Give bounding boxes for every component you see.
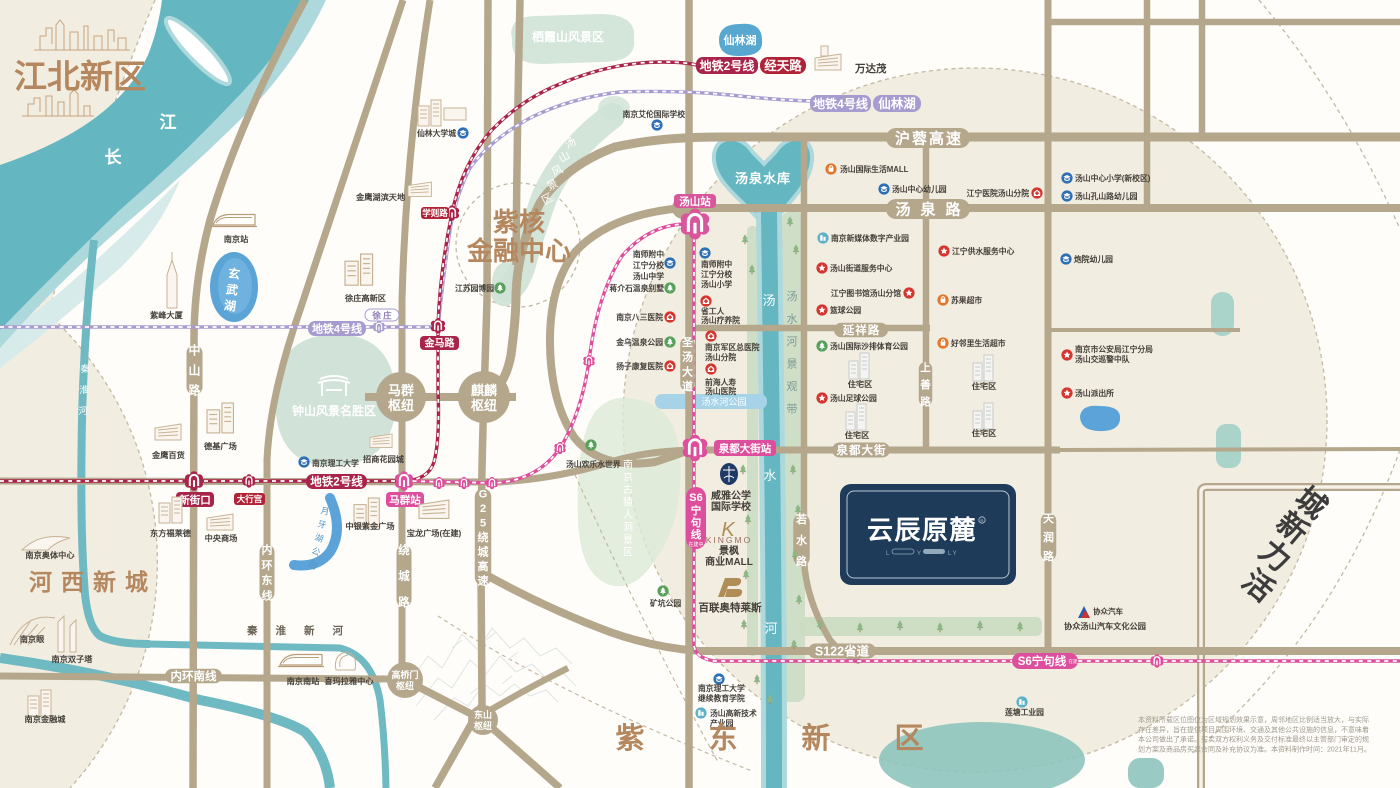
svg-text:马群: 马群 — [388, 383, 414, 398]
svg-text:篮球公园: 篮球公园 — [829, 305, 861, 315]
svg-text:绕: 绕 — [478, 530, 489, 544]
svg-text:城: 城 — [478, 544, 489, 558]
svg-text:句: 句 — [691, 516, 702, 529]
svg-text:招商花园城: 招商花园城 — [363, 454, 405, 464]
svg-text:泉都大街: 泉都大街 — [836, 443, 887, 457]
svg-text:金融中心: 金融中心 — [466, 236, 571, 266]
svg-text:协众汽车: 协众汽车 — [1093, 606, 1123, 616]
svg-text:汤: 汤 — [682, 350, 693, 364]
svg-text:马群站: 马群站 — [389, 493, 421, 506]
svg-text:苏果超市: 苏果超市 — [951, 295, 982, 305]
svg-text:路: 路 — [1043, 549, 1055, 563]
svg-text:城: 城 — [398, 569, 410, 583]
svg-text:南京理工大学: 南京理工大学 — [698, 683, 745, 693]
svg-text:汤山孔山路幼儿园: 汤山孔山路幼儿园 — [1075, 191, 1138, 201]
svg-text:高桥门: 高桥门 — [391, 669, 418, 680]
svg-text:炮院幼儿园: 炮院幼儿园 — [1073, 254, 1113, 264]
svg-text:河: 河 — [78, 405, 89, 418]
svg-text:前海人寿: 前海人寿 — [705, 377, 736, 387]
svg-text:汤山站: 汤山站 — [679, 195, 711, 208]
svg-text:2: 2 — [480, 503, 486, 515]
svg-text:绕: 绕 — [398, 543, 410, 557]
svg-text:汤水河公园: 汤水河公园 — [701, 396, 746, 407]
svg-text:蒋介石温泉别墅: 蒋介石温泉别墅 — [609, 283, 664, 293]
svg-text:东方福莱德: 东方福莱德 — [150, 528, 192, 538]
svg-text:江宁分校: 江宁分校 — [701, 269, 732, 279]
svg-text:地铁2号线: 地铁2号线 — [310, 475, 363, 489]
svg-text:徐庄高新区: 徐庄高新区 — [344, 293, 386, 303]
svg-text:矿坑公园: 矿坑公园 — [650, 598, 681, 608]
svg-text:江宁供水服务中心: 江宁供水服务中心 — [952, 246, 1015, 256]
svg-text:中银紫金广场: 中银紫金广场 — [345, 521, 394, 531]
svg-text:国际学校: 国际学校 — [711, 500, 752, 513]
svg-text:泉都大街站: 泉都大街站 — [718, 442, 772, 455]
svg-text:上: 上 — [920, 361, 931, 374]
svg-text:宁: 宁 — [691, 504, 702, 517]
svg-text:在建中: 在建中 — [688, 541, 703, 548]
svg-text:环: 环 — [262, 559, 273, 572]
svg-text:南京市公安局江宁分局: 南京市公安局江宁分局 — [1075, 344, 1153, 354]
svg-text:地铁4号线: 地铁4号线 — [312, 321, 362, 335]
svg-text:山: 山 — [188, 362, 200, 377]
svg-text:区: 区 — [623, 547, 633, 559]
svg-text:圣: 圣 — [681, 336, 694, 349]
svg-text:内环南线: 内环南线 — [171, 669, 217, 683]
svg-text:汤山国际生活MALL: 汤山国际生活MALL — [840, 164, 909, 174]
svg-text:江宁医院汤山分院: 江宁医院汤山分院 — [967, 188, 1030, 198]
svg-text:汤山中学: 汤山中学 — [633, 271, 664, 281]
svg-text:路: 路 — [920, 395, 931, 408]
svg-text:Y: Y — [917, 551, 921, 557]
svg-text:5: 5 — [480, 517, 486, 529]
svg-text:仙林湖: 仙林湖 — [724, 33, 757, 47]
svg-text:汤山分院: 汤山分院 — [705, 352, 736, 362]
svg-text:住宅区: 住宅区 — [972, 381, 997, 391]
svg-text:南京金融城: 南京金融城 — [25, 714, 67, 724]
svg-text:观: 观 — [787, 380, 798, 393]
svg-text:汤山欢乐水世界: 汤山欢乐水世界 — [566, 459, 621, 469]
svg-text:南京理工大学: 南京理工大学 — [312, 458, 359, 468]
svg-text:万达茂: 万达茂 — [854, 62, 887, 75]
svg-text:L Y: L Y — [948, 551, 957, 557]
svg-text:金乌温泉公园: 金乌温泉公园 — [615, 337, 663, 347]
svg-text:线: 线 — [691, 528, 702, 541]
svg-text:带: 带 — [787, 403, 798, 416]
svg-text:住宅区: 住宅区 — [845, 430, 870, 440]
svg-text:秦: 秦 — [80, 363, 91, 376]
svg-text:汤山交巡警中队: 汤山交巡警中队 — [1075, 354, 1130, 364]
svg-text:汤山中心小学(新校区): 汤山中心小学(新校区) — [1075, 173, 1151, 183]
svg-text:江宁分校: 江宁分校 — [633, 260, 664, 270]
svg-text:地铁4号线: 地铁4号线 — [813, 96, 868, 111]
svg-text:武: 武 — [225, 281, 239, 298]
svg-text:S6宁句线: S6宁句线 — [1018, 654, 1067, 668]
svg-text:新街口: 新街口 — [179, 493, 211, 506]
svg-text:汤山足球公园: 汤山足球公园 — [830, 393, 877, 403]
svg-text:枢纽: 枢纽 — [474, 720, 492, 731]
svg-text:住宅区: 住宅区 — [972, 428, 997, 438]
svg-text:玄: 玄 — [227, 265, 241, 282]
svg-text:德基广场: 德基广场 — [203, 441, 237, 451]
svg-text:扬子康复医院: 扬子康复医院 — [616, 361, 663, 371]
svg-text:继续教育学院: 继续教育学院 — [698, 693, 745, 703]
svg-text:新: 新 — [801, 722, 830, 755]
svg-text:线: 线 — [262, 588, 273, 602]
svg-text:东: 东 — [262, 573, 273, 587]
svg-text:善: 善 — [920, 378, 931, 391]
svg-text:秦淮新河: 秦淮新河 — [246, 624, 361, 637]
svg-text:大: 大 — [682, 364, 693, 378]
svg-text:淮: 淮 — [79, 385, 90, 397]
svg-text:中央商场: 中央商场 — [205, 533, 238, 543]
svg-text:河: 河 — [787, 335, 798, 348]
svg-text:S6: S6 — [689, 492, 702, 504]
svg-text:存在差异，旨在提供项目周围环境、交通及其他公共设施的信息，不: 存在差异，旨在提供项目周围环境、交通及其他公共设施的信息，不意味着 — [1138, 725, 1369, 734]
svg-text:划方案及商品房买卖合同及补充协议为准。本资料制作时间：202: 划方案及商品房买卖合同及补充协议为准。本资料制作时间：2021年11月。 — [1138, 744, 1371, 753]
svg-text:湖: 湖 — [223, 297, 237, 314]
svg-text:好邻里生活超市: 好邻里生活超市 — [950, 338, 1006, 348]
svg-text:长: 长 — [105, 147, 123, 167]
svg-text:洞: 洞 — [623, 522, 633, 534]
svg-text:仙林大学城: 仙林大学城 — [417, 128, 456, 138]
svg-text:江北新区: 江北新区 — [14, 58, 146, 95]
svg-text:紫: 紫 — [615, 722, 644, 755]
svg-text:威雅公学: 威雅公学 — [711, 489, 751, 502]
svg-text:月: 月 — [320, 505, 330, 516]
svg-text:汤泉水库: 汤泉水库 — [735, 171, 791, 186]
svg-text:汤泉路: 汤泉路 — [895, 200, 970, 218]
svg-text:汤山国际沙排体育公园: 汤山国际沙排体育公园 — [830, 341, 908, 351]
svg-text:金鹰百货: 金鹰百货 — [151, 450, 185, 460]
svg-text:景: 景 — [787, 358, 798, 371]
svg-text:路: 路 — [188, 382, 201, 397]
svg-text:S122省道: S122省道 — [815, 644, 870, 659]
svg-text:汤山小学: 汤山小学 — [701, 279, 732, 289]
svg-text:南京军区总医院: 南京军区总医院 — [705, 342, 760, 352]
svg-text:本资料所载区位图仅为区域规划效果示意，周邻地区比例适当放大，: 本资料所载区位图仅为区域规划效果示意，周邻地区比例适当放大，与实际 — [1138, 715, 1369, 724]
svg-text:南京八三医院: 南京八三医院 — [616, 312, 663, 322]
svg-text:徐 庄: 徐 庄 — [371, 311, 392, 321]
svg-text:润: 润 — [1043, 530, 1054, 544]
svg-text:南京南站: 南京南站 — [287, 676, 321, 686]
svg-text:南京奥体中心: 南京奥体中心 — [25, 550, 75, 560]
svg-text:江宁图书馆汤山分馆: 江宁图书馆汤山分馆 — [831, 288, 901, 298]
svg-text:江: 江 — [160, 113, 177, 132]
svg-text:栖霞山风景区: 栖霞山风景区 — [532, 29, 604, 44]
svg-text:水: 水 — [763, 468, 776, 483]
svg-text:汤山街道服务中心: 汤山街道服务中心 — [830, 263, 893, 273]
svg-text:金鹰湖滨天地: 金鹰湖滨天地 — [355, 192, 406, 202]
svg-text:金马路: 金马路 — [424, 337, 456, 350]
svg-text:在建: 在建 — [1069, 658, 1078, 665]
svg-text:沪蓉高速: 沪蓉高速 — [895, 129, 963, 147]
svg-text:汤: 汤 — [762, 293, 775, 308]
svg-text:东: 东 — [708, 721, 737, 755]
svg-text:汤山疗养院: 汤山疗养院 — [701, 315, 740, 325]
svg-text:内: 内 — [262, 542, 273, 556]
svg-text:南师附中: 南师附中 — [633, 249, 664, 259]
svg-text:京: 京 — [623, 471, 633, 484]
svg-text:区: 区 — [894, 723, 923, 755]
svg-text:住宅区: 住宅区 — [848, 379, 873, 389]
svg-text:KINGMO: KINGMO — [706, 535, 752, 545]
svg-text:人: 人 — [623, 509, 633, 521]
svg-text:麒麟: 麒麟 — [471, 383, 498, 398]
svg-text:河西新城: 河西新城 — [29, 569, 157, 595]
svg-text:高: 高 — [478, 559, 489, 573]
svg-text:水: 水 — [787, 313, 798, 326]
svg-text:大行宫: 大行宫 — [237, 494, 263, 504]
svg-text:中: 中 — [188, 342, 200, 357]
svg-text:紫核: 紫核 — [493, 207, 545, 237]
svg-text:商业MALL: 商业MALL — [705, 555, 753, 568]
svg-text:南京站: 南京站 — [224, 234, 249, 244]
svg-text:道: 道 — [682, 379, 693, 393]
svg-text:汤山中心幼儿园: 汤山中心幼儿园 — [892, 184, 947, 194]
svg-text:枢纽: 枢纽 — [471, 398, 497, 413]
svg-text:G: G — [479, 488, 488, 500]
svg-text:南: 南 — [623, 458, 633, 471]
svg-text:本公司做出了承诺。买卖双方权利义务及交付标准最终以主管部门审: 本公司做出了承诺。买卖双方权利义务及交付标准最终以主管部门审定的规 — [1138, 735, 1369, 744]
svg-text:喜玛拉雅中心: 喜玛拉雅中心 — [324, 676, 374, 686]
svg-text:南京眼: 南京眼 — [20, 634, 45, 644]
svg-text:景枫: 景枫 — [719, 544, 739, 557]
svg-text:速: 速 — [478, 573, 489, 587]
svg-text:汤山派出所: 汤山派出所 — [1075, 388, 1114, 398]
svg-text:钟山风景名胜区: 钟山风景名胜区 — [292, 403, 376, 418]
svg-text:紫峰大厦: 紫峰大厦 — [150, 310, 184, 320]
svg-text:百联奥特莱斯: 百联奥特莱斯 — [699, 601, 762, 614]
svg-text:路: 路 — [398, 595, 410, 609]
svg-text:学则路: 学则路 — [422, 208, 448, 218]
svg-text:宝龙广场(在建): 宝龙广场(在建) — [407, 528, 462, 538]
svg-text:路: 路 — [796, 554, 808, 568]
svg-text:莲塘工业园: 莲塘工业园 — [1005, 707, 1044, 717]
svg-text:云辰原麓: 云辰原麓 — [867, 515, 977, 545]
svg-text:河: 河 — [764, 621, 777, 636]
svg-text:枢纽: 枢纽 — [388, 398, 414, 413]
svg-text:枢纽: 枢纽 — [396, 680, 414, 691]
svg-text:汤山医院: 汤山医院 — [705, 386, 736, 396]
svg-text:东山: 东山 — [474, 709, 492, 720]
svg-text:汤: 汤 — [787, 289, 798, 303]
svg-text:江苏园博园: 江苏园博园 — [455, 283, 494, 293]
svg-text:地铁2号线: 地铁2号线 — [700, 58, 755, 73]
svg-text:景: 景 — [623, 534, 633, 546]
svg-text:猿: 猿 — [623, 496, 633, 509]
svg-text:南京新媒体数字产业园: 南京新媒体数字产业园 — [831, 233, 909, 243]
svg-text:经天路: 经天路 — [764, 58, 802, 73]
svg-text:南京双子塔: 南京双子塔 — [52, 654, 94, 664]
svg-text:天: 天 — [1043, 512, 1055, 525]
svg-text:古: 古 — [623, 483, 633, 496]
svg-text:水: 水 — [796, 533, 808, 547]
svg-text:省工人: 省工人 — [700, 306, 725, 316]
svg-text:南京艾伦国际学校: 南京艾伦国际学校 — [623, 109, 686, 119]
svg-text:延祥路: 延祥路 — [842, 323, 881, 337]
svg-text:仙林湖: 仙林湖 — [878, 96, 916, 111]
svg-text:协众汤山汽车文化公园: 协众汤山汽车文化公园 — [1064, 621, 1146, 631]
svg-text:汤山高新技术: 汤山高新技术 — [710, 708, 757, 718]
svg-text:南师附中: 南师附中 — [701, 259, 732, 269]
